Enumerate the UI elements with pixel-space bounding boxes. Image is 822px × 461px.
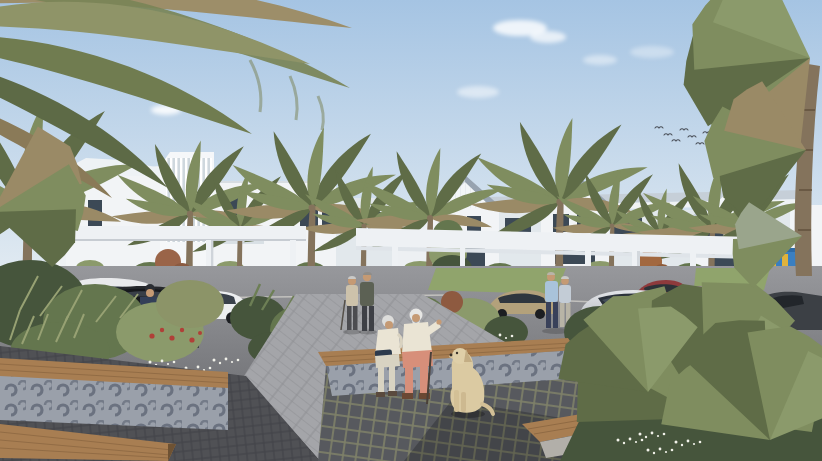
rendering-canvas [0,0,822,461]
scene-rendering [0,0,822,461]
